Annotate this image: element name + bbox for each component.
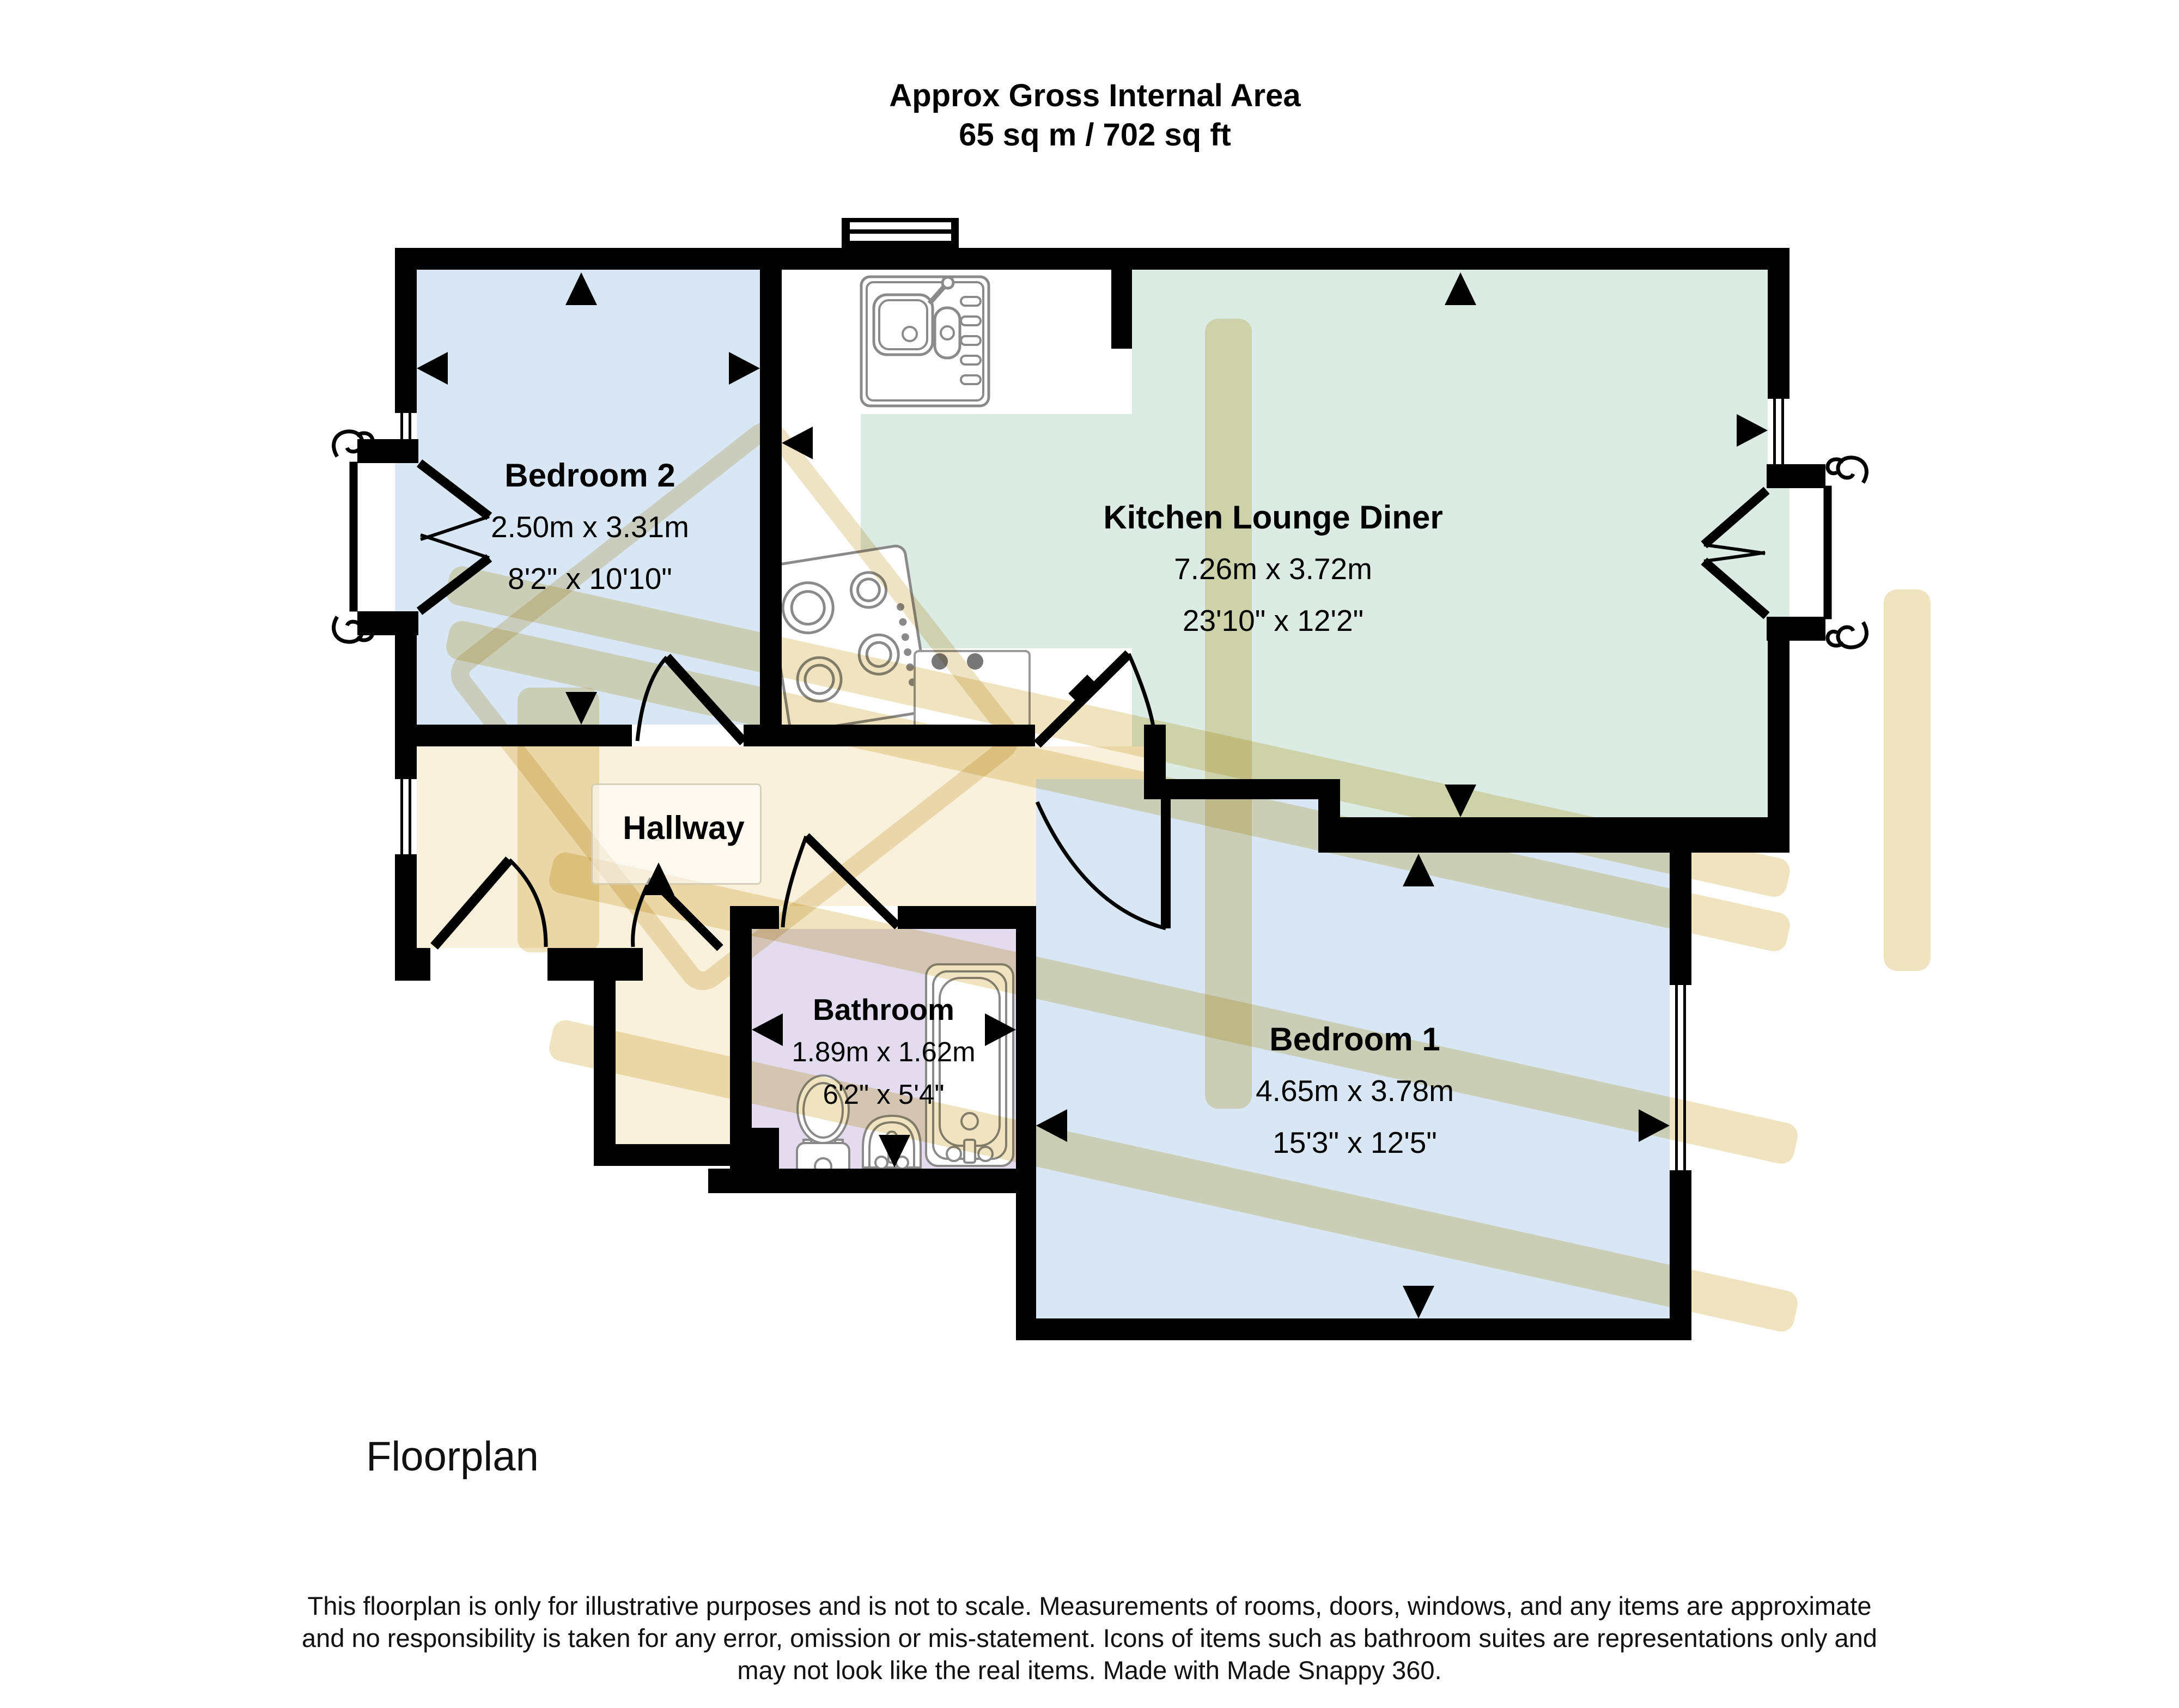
- door-swing-icon: [1037, 802, 1166, 928]
- plan-caption: Floorplan: [366, 1433, 539, 1480]
- dimension-arrow-icon: [1639, 1109, 1670, 1142]
- door-leaf: [434, 860, 509, 946]
- french-door-leaf: [1704, 490, 1767, 545]
- floorplan-page: Approx Gross Internal Area 65 sq m / 702…: [0, 0, 2179, 1708]
- dimension-arrow-icon: [565, 272, 597, 305]
- juliet-balcony-icon: [1824, 486, 1831, 619]
- disclaimer-text: This floorplan is only for illustrative …: [218, 1590, 1961, 1686]
- french-door-leaf: [1704, 561, 1767, 616]
- dimension-arrow-icon: [643, 862, 674, 895]
- dimension-arrow-icon: [1445, 272, 1476, 305]
- dimension-arrow-icon: [417, 352, 448, 385]
- page-title: Approx Gross Internal Area 65 sq m / 702…: [817, 76, 1373, 155]
- room-label-hallway: Hallway: [466, 804, 902, 853]
- room-label-bedroom2: Bedroom 2 2.50m x 3.31m 8'2" x 10'10": [372, 449, 808, 605]
- title-line2: 65 sq m / 702 sq ft: [817, 116, 1373, 155]
- dimension-arrow-icon: [1445, 785, 1476, 817]
- room-label-kitchen-lounge-diner: Kitchen Lounge Diner 7.26m x 3.72m 23'10…: [1028, 491, 1518, 647]
- dimension-arrow-icon: [729, 352, 760, 385]
- juliet-balcony-icon: [350, 462, 357, 611]
- doors-and-balconies-overlay: [0, 0, 2179, 1708]
- dimension-arrow-icon: [565, 692, 597, 725]
- room-label-bathroom: Bathroom 1.89m x 1.62m 6'2" x 5'4": [666, 988, 1101, 1116]
- dimension-arrow-icon: [879, 1135, 910, 1168]
- dimension-arrow-icon: [1403, 854, 1434, 886]
- room-label-bedroom1: Bedroom 1 4.65m x 3.78m 15'3" x 12'5": [1137, 1013, 1573, 1169]
- dimension-arrow-icon: [1737, 414, 1768, 447]
- dimension-arrow-icon: [1403, 1286, 1434, 1318]
- title-line1: Approx Gross Internal Area: [817, 76, 1373, 116]
